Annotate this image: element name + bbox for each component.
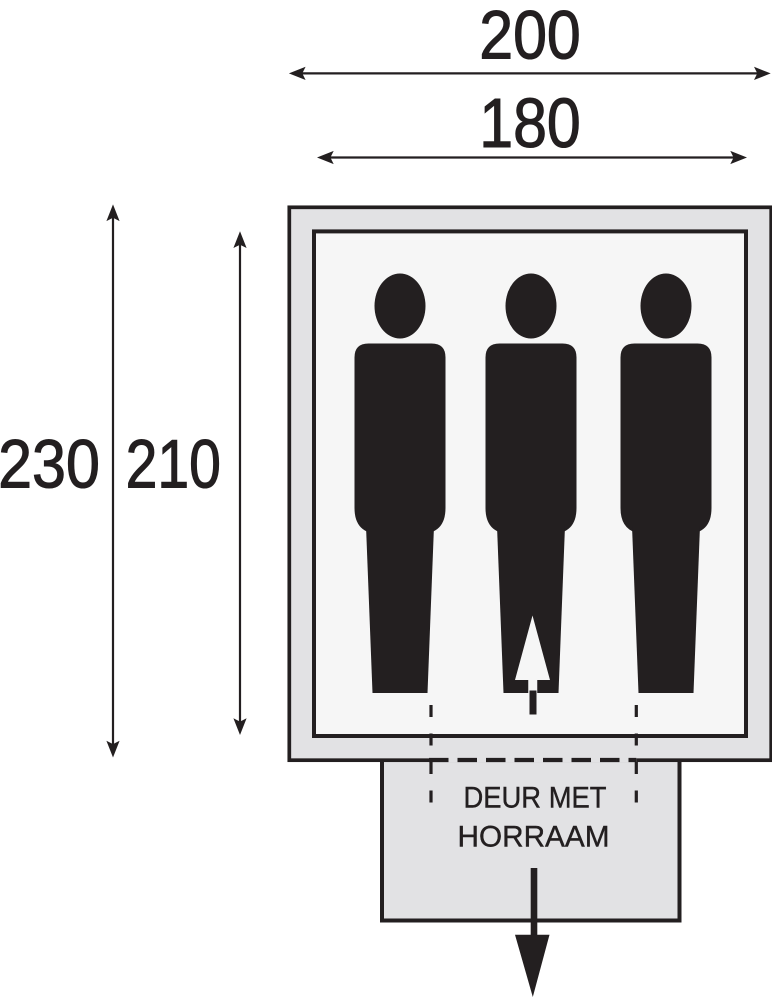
svg-text:230: 230 bbox=[0, 425, 100, 502]
svg-text:HORRAAM: HORRAAM bbox=[458, 820, 610, 853]
svg-text:200: 200 bbox=[479, 0, 581, 74]
svg-text:DEUR MET: DEUR MET bbox=[464, 782, 607, 815]
svg-text:180: 180 bbox=[479, 84, 581, 162]
svg-text:210: 210 bbox=[126, 425, 221, 502]
